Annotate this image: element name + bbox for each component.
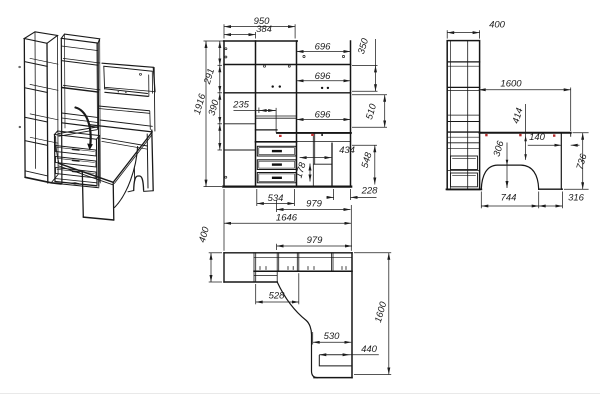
svg-text:400: 400	[489, 20, 506, 31]
svg-text:530: 530	[324, 331, 341, 342]
svg-text:696: 696	[315, 42, 332, 53]
svg-text:696: 696	[315, 71, 332, 82]
svg-text:1600: 1600	[373, 300, 390, 324]
svg-text:1600: 1600	[500, 79, 522, 90]
svg-text:548: 548	[360, 150, 375, 169]
svg-text:528: 528	[269, 291, 286, 302]
svg-text:510: 510	[364, 102, 379, 121]
svg-text:384: 384	[256, 24, 272, 35]
svg-text:228: 228	[361, 185, 379, 196]
svg-text:979: 979	[306, 199, 323, 210]
svg-text:434: 434	[339, 145, 355, 156]
svg-text:400: 400	[197, 225, 212, 244]
svg-text:696: 696	[315, 110, 332, 121]
svg-text:440: 440	[361, 344, 378, 355]
svg-text:414: 414	[511, 107, 526, 125]
svg-text:140: 140	[529, 132, 546, 143]
svg-text:291: 291	[202, 67, 217, 86]
svg-text:350: 350	[356, 36, 371, 55]
svg-text:736: 736	[575, 152, 590, 171]
svg-text:534: 534	[268, 193, 284, 204]
svg-text:235: 235	[232, 100, 250, 111]
svg-text:316: 316	[568, 193, 585, 204]
svg-text:306: 306	[492, 139, 507, 158]
svg-text:979: 979	[307, 235, 324, 246]
svg-text:744: 744	[501, 193, 517, 204]
svg-text:1646: 1646	[276, 213, 298, 224]
